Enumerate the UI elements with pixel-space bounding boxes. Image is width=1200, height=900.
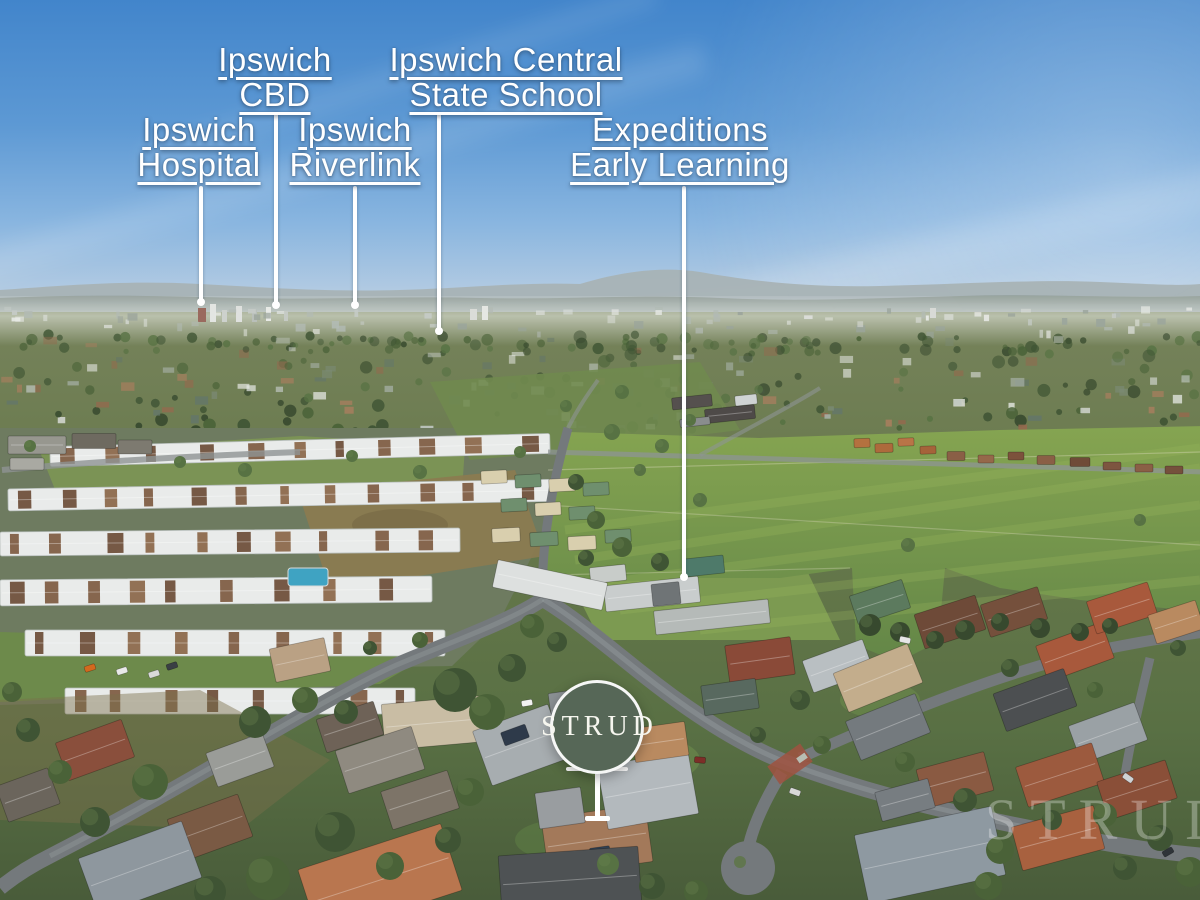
strud-watermark: STRUD — [985, 786, 1200, 853]
label-ipswich-hospital: Ipswich Hospital — [137, 112, 260, 182]
leader-line-ipswich-cbd — [274, 113, 278, 306]
swimming-pool — [288, 568, 328, 586]
label-ipswich-cbd: Ipswich CBD — [218, 42, 332, 112]
label-text: CBD — [218, 77, 332, 112]
horizon-haze — [0, 296, 1200, 346]
aerial-photo-overlay: Ipswich CBD Ipswich Central State School… — [0, 0, 1200, 900]
leader-line-expeditions-early-learning — [682, 186, 686, 578]
label-expeditions-early-learning: Expeditions Early Learning — [570, 112, 790, 182]
label-text: Expeditions — [570, 112, 790, 147]
label-text: Hospital — [137, 147, 260, 182]
strud-logo-badge: STRUD — [550, 680, 644, 774]
label-text: Ipswich Central — [389, 42, 622, 77]
label-text: Ipswich — [218, 42, 332, 77]
label-text: Riverlink — [289, 147, 420, 182]
label-ipswich-riverlink: Ipswich Riverlink — [289, 112, 420, 182]
badge-pin-foot — [585, 816, 610, 821]
label-ipswich-central-state-school: Ipswich Central State School — [389, 42, 622, 112]
label-text: State School — [389, 77, 622, 112]
leader-line-ipswich-riverlink — [353, 186, 357, 306]
badge-pin-stem — [595, 770, 600, 818]
leader-line-ipswich-hospital — [199, 186, 203, 303]
label-text: Ipswich — [289, 112, 420, 147]
leader-line-ipswich-central-state-school — [437, 113, 441, 332]
label-text: Early Learning — [570, 147, 790, 182]
strud-logo-text: STRUD — [536, 711, 658, 743]
label-text: Ipswich — [137, 112, 260, 147]
